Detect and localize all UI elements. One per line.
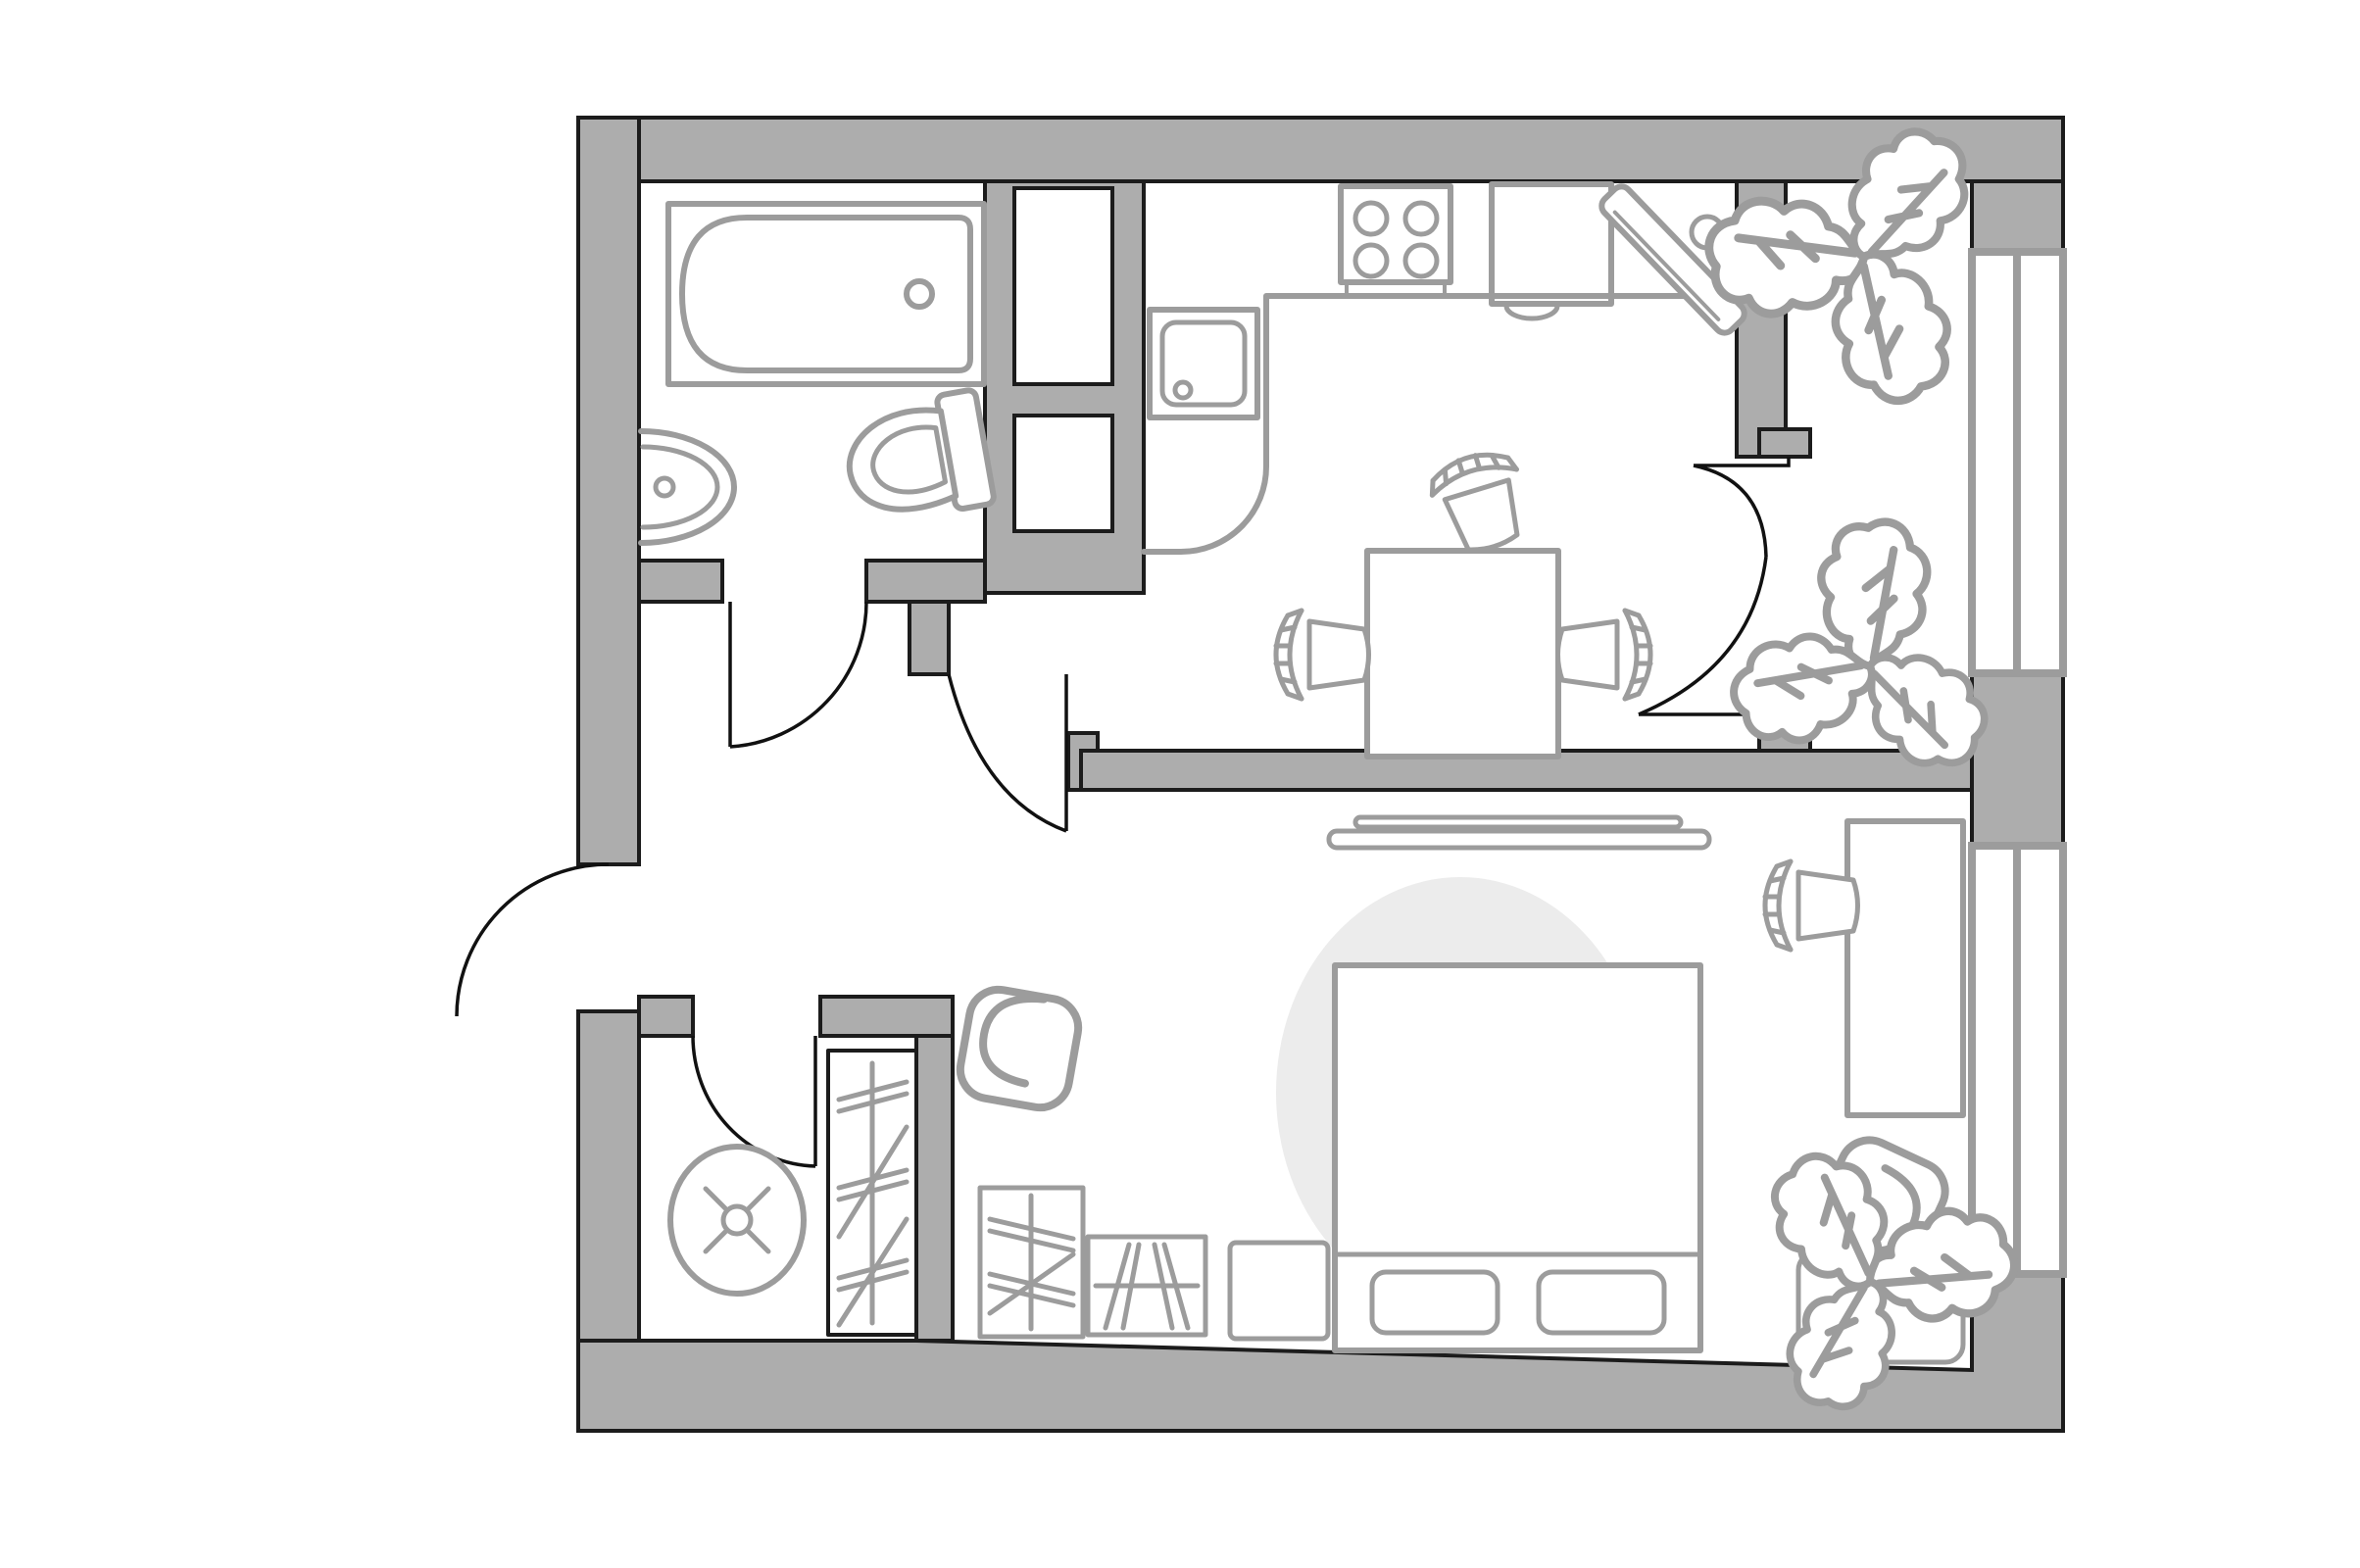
wall-right-mid-block (1972, 673, 2063, 846)
wall-left-upper (578, 118, 639, 864)
stove-ledge (1347, 282, 1445, 295)
bathtub-rim (668, 204, 984, 384)
round-appliance-hub (723, 1206, 751, 1234)
round-appliance (670, 1147, 804, 1294)
wall-storage-top-right (820, 997, 953, 1036)
wall-balcony-door-top-post (1759, 429, 1810, 457)
room-door-swing (949, 674, 1066, 831)
nightstand (1230, 1243, 1328, 1339)
floorplan-canvas (0, 0, 2360, 1568)
tv-panel (1355, 817, 1681, 827)
refrigerator-body (1492, 184, 1611, 304)
stove-burner (1405, 203, 1437, 234)
hatched-wardrobe (980, 1188, 1083, 1337)
toilet (840, 389, 995, 527)
entry-door-swing (457, 864, 609, 1016)
wall-top (578, 118, 2063, 181)
stove-burner (1355, 245, 1387, 276)
round-appliance-body (670, 1147, 804, 1294)
bathtub (668, 204, 984, 384)
wall-bath-bottom-right (866, 561, 985, 602)
double-bed (1335, 965, 1700, 1350)
washbasin (641, 431, 734, 543)
duct-niche-lower (1014, 416, 1112, 531)
stove-burner (1355, 203, 1387, 234)
kitchen-counter-edge (1144, 296, 1737, 552)
hatched-dresser (1088, 1237, 1205, 1335)
dining-chair-left (1276, 611, 1369, 699)
armchair-left (956, 985, 1083, 1112)
dining-chair-top (1425, 445, 1537, 560)
wall-hall-door-post (910, 602, 949, 674)
washbasin-tap (656, 478, 673, 496)
tv-console (1329, 817, 1709, 848)
duct-niche-upper (1014, 188, 1112, 384)
dining-table (1367, 551, 1558, 757)
kitchen-sink (1150, 310, 1257, 417)
bed-pillow-right (1539, 1272, 1664, 1333)
floorplan-svg (0, 0, 2360, 1568)
bed-pillow-left (1372, 1272, 1498, 1333)
bathroom-door-swing (730, 602, 866, 747)
bathtub-basin (682, 218, 970, 370)
bathtub-drain (907, 281, 932, 307)
wall-bath-bottom-left (639, 561, 722, 602)
dining-chair-right (1558, 611, 1651, 699)
desk (1847, 821, 1963, 1115)
wall-storage-top-left (639, 997, 693, 1036)
desk-chair (1765, 861, 1858, 950)
refrigerator-handle (1506, 306, 1557, 318)
built-in-wardrobe (828, 1051, 916, 1335)
wall-right-top-corner (1972, 181, 2063, 252)
tv-shelf (1329, 831, 1709, 848)
round-appliance-ticks (706, 1189, 768, 1251)
stove-burner (1405, 245, 1437, 276)
wall-storage-right (916, 1036, 953, 1341)
kitchen-sink-tap (1175, 382, 1191, 398)
duct-niches (1014, 188, 1112, 531)
stove (1341, 186, 1450, 295)
